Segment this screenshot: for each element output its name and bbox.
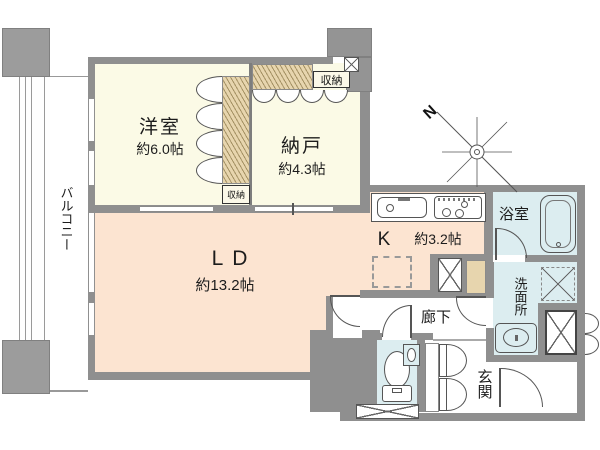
bathroom-label: 浴室 [496,205,532,223]
wall-segment [538,303,585,310]
bathtub-inner [545,200,571,248]
closet-label-box: 収納 [313,71,350,88]
washroom-label: 洗面所 [511,266,529,326]
shoe-closet [425,343,439,412]
closet-door-leaf [439,378,447,411]
wall-segment [493,355,538,362]
trunk-door-arc [585,334,599,355]
balcony-line [50,76,88,77]
wall-column-block [327,28,372,57]
balcony-pillar [2,28,50,77]
wall-segment [538,355,585,362]
wall-segment [340,390,356,421]
kitchen-label: K [372,228,396,250]
western-room-closet [222,76,250,184]
wall-segment [538,303,545,362]
pipe-shaft [438,258,462,292]
closet-door-arc [447,378,467,411]
window [88,213,95,292]
window [88,151,95,185]
balcony-label: バルコニー [56,166,76,271]
hallway-label: 廊下 [415,308,457,326]
wall-segment [88,57,333,64]
wall-segment [88,372,345,380]
western-room-size: 約6.0帖 [110,140,210,158]
storage-room-size: 約4.3帖 [257,160,347,178]
sliding-door [255,206,333,212]
closet-label: 収納 [227,188,245,201]
entrance-storage-counter [356,404,419,419]
closet-label: 収納 [321,72,343,88]
balcony-railing [31,77,32,340]
living-dining-size: 約13.2帖 [165,275,285,295]
washroom-door-arc [456,298,486,326]
closet-label-box: 収納 [222,185,250,204]
balcony-pillar [2,340,50,394]
sliding-door [140,206,213,212]
wall-segment [525,255,577,262]
sliding-door-tick [292,203,294,215]
compass-rose: N [410,90,540,210]
window [88,99,95,141]
trunk-storage [545,310,577,355]
entrance-door-arc [501,368,543,407]
washing-machine-space [541,267,575,301]
tub-drain [556,242,561,247]
window [88,303,95,335]
sink-drain [386,204,394,212]
compass-north-label: N [420,102,440,122]
storage-room-label: 納戸 [257,134,347,158]
stove-burner [455,209,464,218]
duct-shaft [466,260,486,294]
living-dining-label: LD [165,245,294,271]
entrance-label: 玄関 [473,362,495,406]
closet-door-leaf [439,344,447,377]
faucet-icon [398,198,410,201]
entrance-step-line [433,339,486,341]
balcony-edge [44,77,45,340]
balcony-line [50,390,88,392]
hand-basin-bowl [407,348,416,362]
wall-segment [360,92,370,213]
vanity-faucet [515,335,518,341]
toilet-flush-handle [392,388,402,393]
kitchen-size: 約3.2帖 [405,230,471,248]
balcony-railing [25,77,26,340]
storage-room-closet [252,64,313,90]
toilet-door-arc [382,305,411,337]
balcony-railing [19,77,20,340]
floor-plan: 収納 収納 [0,0,600,450]
closet-door-arc [447,344,467,377]
refrigerator-space [372,256,412,288]
western-room-label: 洋室 [110,115,210,139]
shaft-box [344,57,359,72]
trunk-door-arc [585,313,599,334]
